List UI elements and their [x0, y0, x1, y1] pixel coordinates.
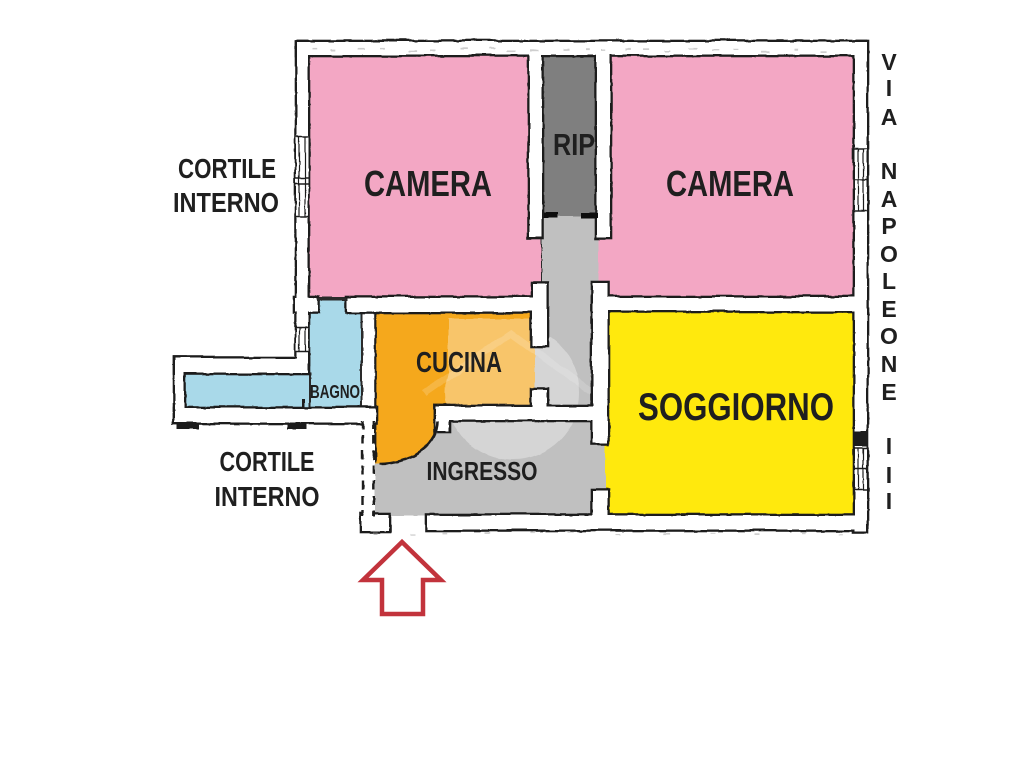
svg-text:SOGGIORNO: SOGGIORNO	[638, 386, 834, 429]
svg-text:A: A	[881, 186, 898, 212]
svg-text:CUCINA: CUCINA	[416, 347, 502, 379]
svg-text:O: O	[880, 241, 898, 267]
svg-text:CORTILE: CORTILE	[220, 446, 315, 477]
svg-text:I: I	[886, 462, 892, 488]
svg-text:I: I	[886, 75, 892, 101]
svg-text:L: L	[882, 268, 896, 294]
svg-text:RIP: RIP	[553, 127, 595, 162]
svg-text:V: V	[881, 49, 897, 75]
svg-text:O: O	[880, 323, 898, 349]
svg-text:P: P	[881, 213, 896, 239]
svg-text:BAGNO: BAGNO	[310, 382, 360, 402]
svg-text:E: E	[881, 296, 896, 322]
svg-text:INTERNO: INTERNO	[173, 187, 279, 218]
svg-text:A: A	[881, 104, 898, 130]
svg-text:I: I	[886, 433, 892, 459]
svg-text:E: E	[881, 379, 896, 405]
svg-text:N: N	[881, 158, 898, 184]
svg-text:CORTILE: CORTILE	[178, 153, 276, 184]
svg-text:N: N	[881, 351, 898, 377]
svg-text:I: I	[886, 488, 892, 514]
svg-text:CAMERA: CAMERA	[364, 163, 492, 204]
svg-text:INTERNO: INTERNO	[215, 481, 320, 512]
svg-text:CAMERA: CAMERA	[666, 163, 794, 204]
svg-text:INGRESSO: INGRESSO	[427, 456, 538, 486]
